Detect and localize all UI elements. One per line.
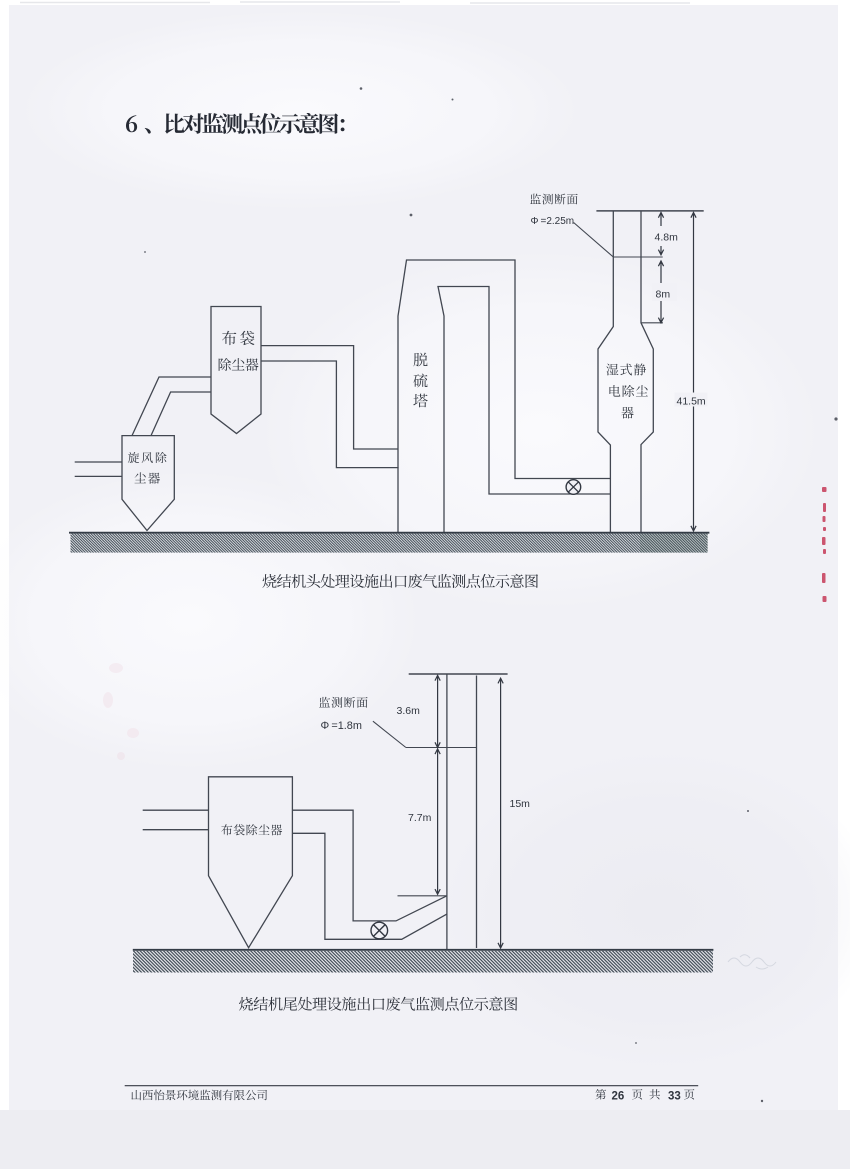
svg-text:Φ =1.8m: Φ =1.8m	[321, 720, 362, 732]
svg-text:Φ =2.25m: Φ =2.25m	[531, 216, 575, 227]
svg-text:41.5m: 41.5m	[677, 396, 706, 408]
svg-text:8m: 8m	[656, 289, 671, 301]
svg-text:15m: 15m	[510, 798, 531, 810]
svg-text:3.6m: 3.6m	[397, 705, 421, 717]
svg-text:4.8m: 4.8m	[655, 232, 679, 244]
svg-text:33: 33	[668, 1091, 681, 1103]
svg-text:7.7m: 7.7m	[408, 812, 432, 824]
svg-text:26: 26	[612, 1091, 625, 1103]
